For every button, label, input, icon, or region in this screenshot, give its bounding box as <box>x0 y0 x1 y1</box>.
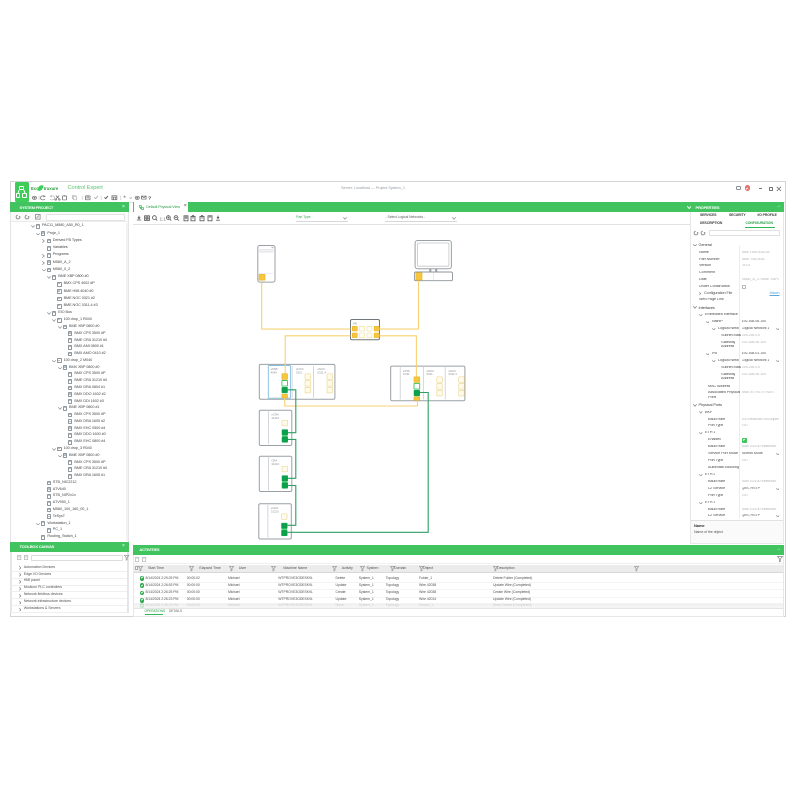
svg-text:31210: 31210 <box>271 462 279 466</box>
svg-text:*: * <box>123 195 126 201</box>
svg-text:0321: 0321 <box>296 370 303 374</box>
svg-text:0311.4: 0311.4 <box>318 370 327 374</box>
svg-text:1:1: 1:1 <box>160 216 167 221</box>
svg-text:31210: 31210 <box>271 416 279 420</box>
svg-text:0311.4: 0311.4 <box>449 372 458 376</box>
svg-text:?: ? <box>148 196 151 201</box>
svg-text:24E: 24E <box>353 321 358 325</box>
svg-text:0321: 0321 <box>427 372 434 376</box>
svg-text:31210: 31210 <box>271 509 279 513</box>
svg-text:1040: 1040 <box>403 372 410 376</box>
svg-text:4040: 4040 <box>271 370 278 374</box>
